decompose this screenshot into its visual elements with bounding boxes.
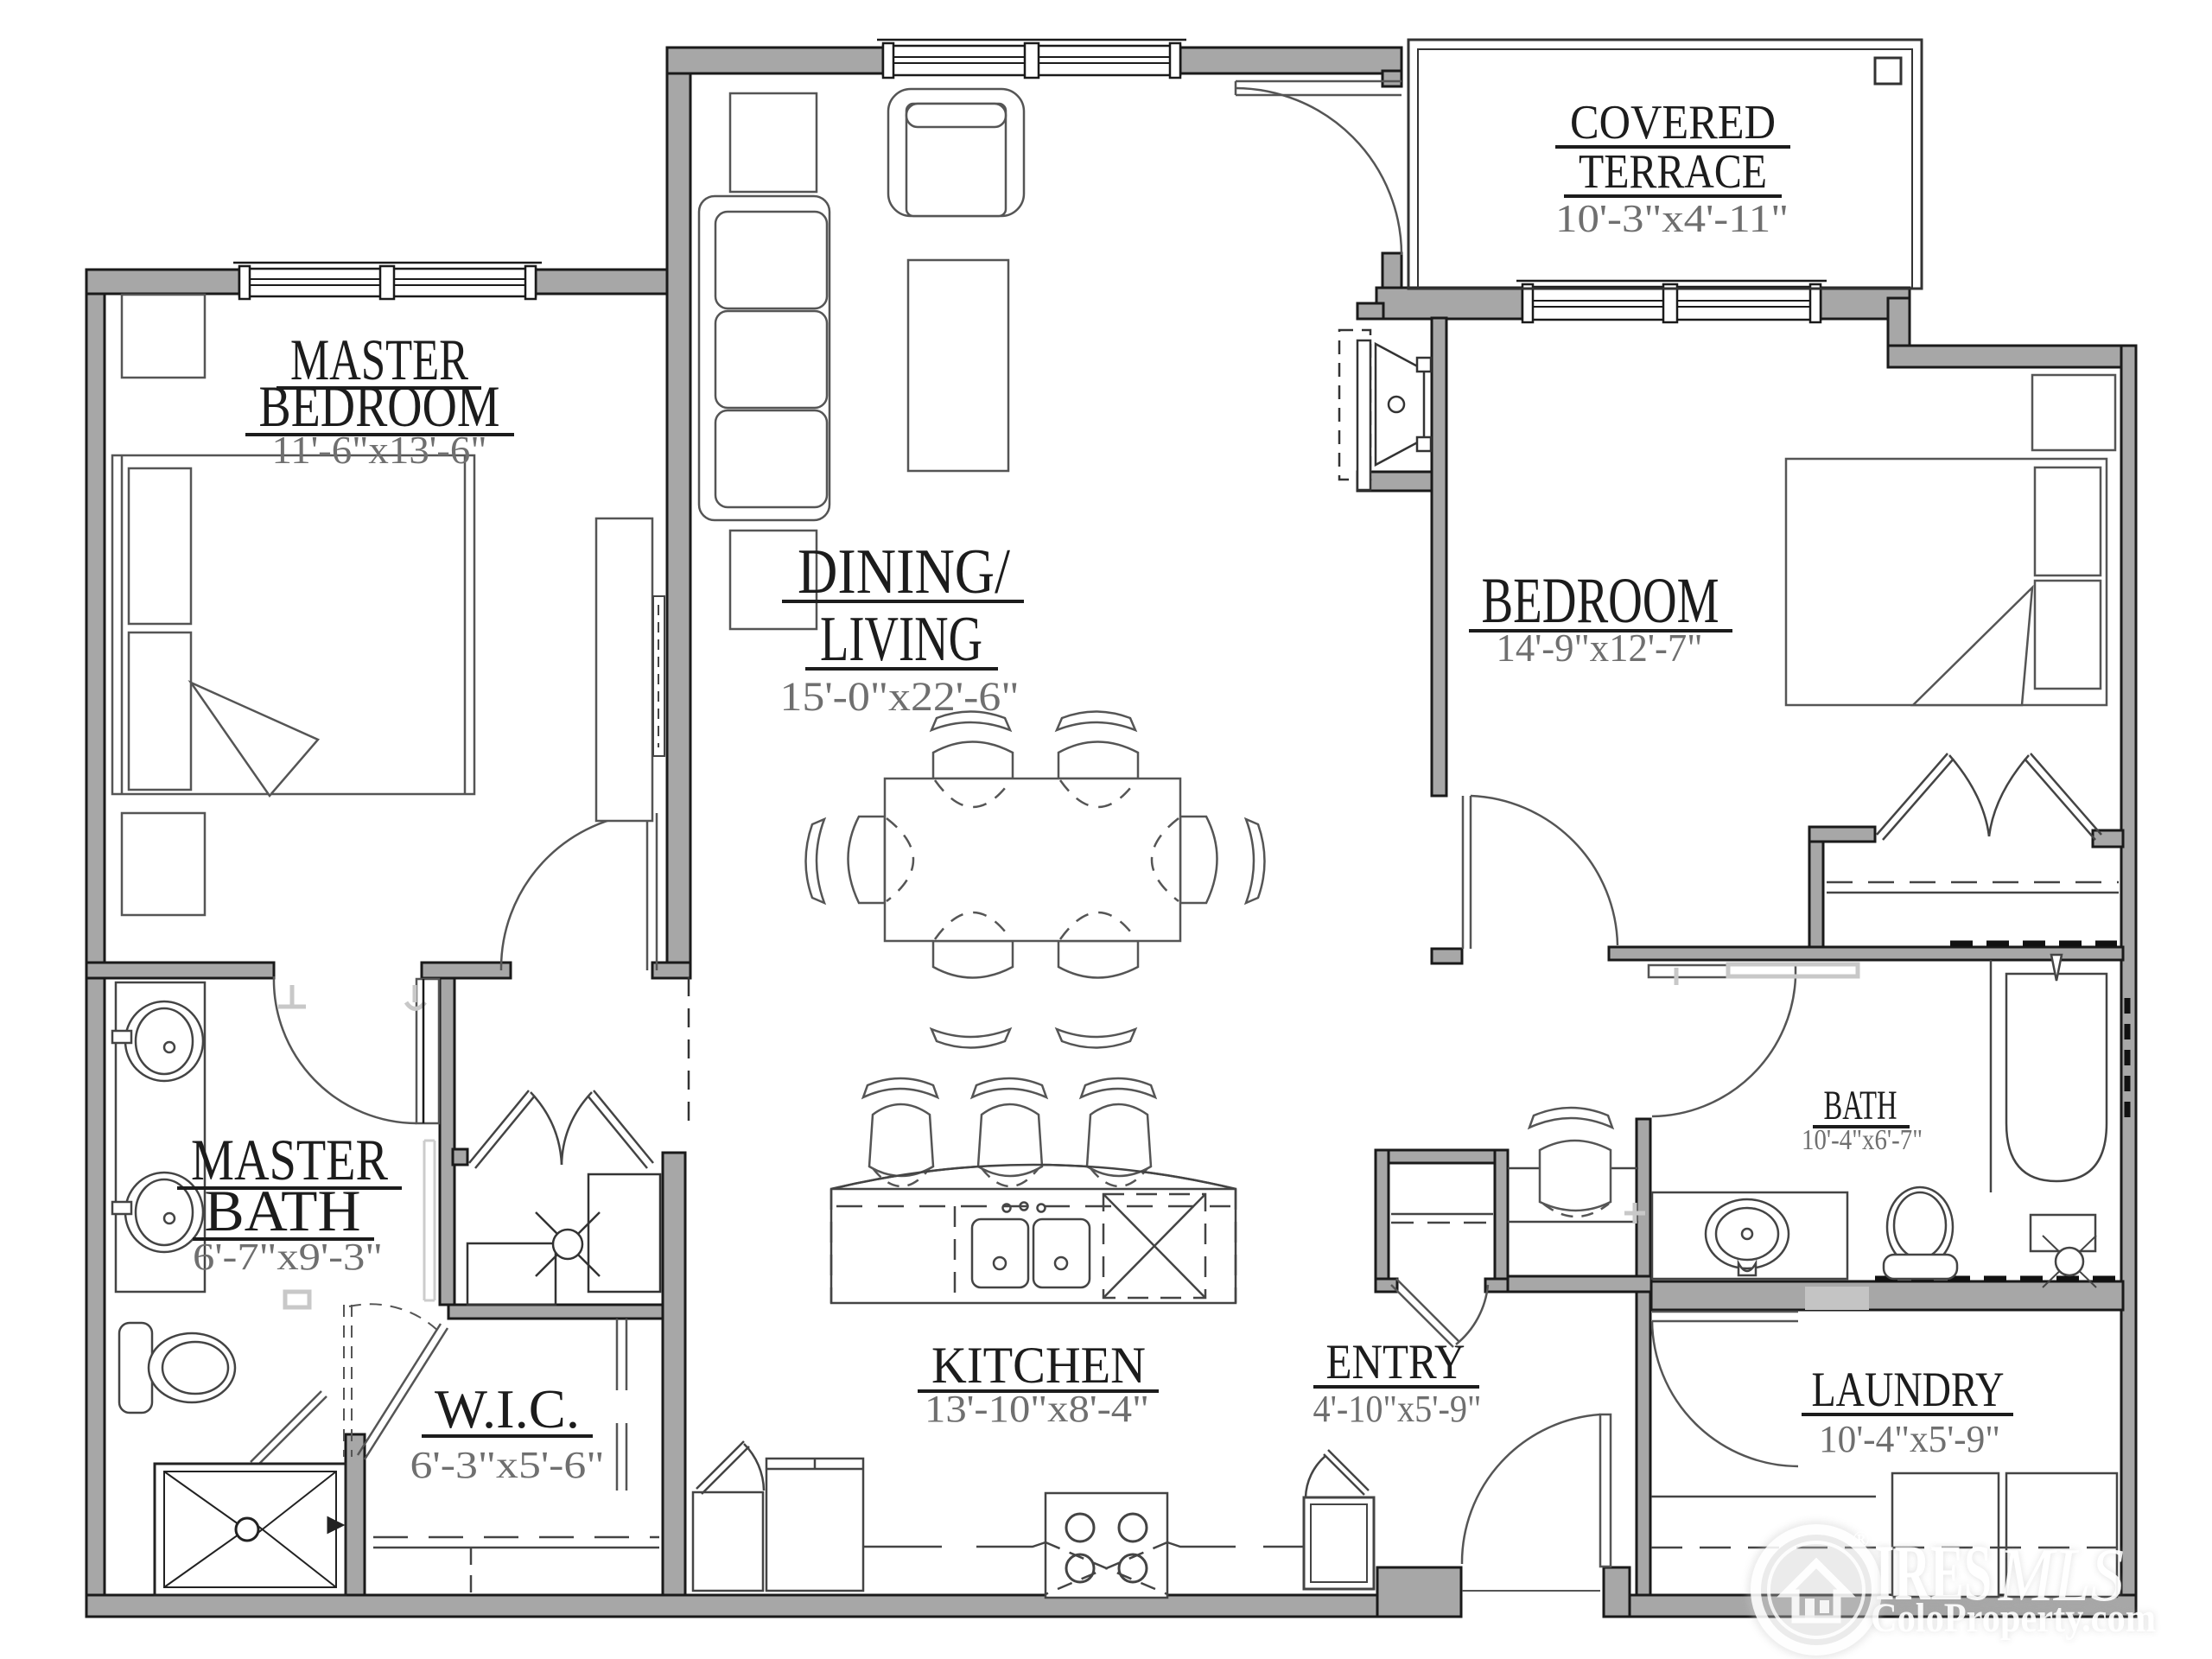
svg-text:© IRES: © IRES xyxy=(2168,1536,2207,1633)
svg-text:10'-4"x5'-9": 10'-4"x5'-9" xyxy=(1819,1418,2000,1460)
svg-text:11'-6"x13'-6": 11'-6"x13'-6" xyxy=(272,428,487,472)
svg-text:10'-3"x4'-11": 10'-3"x4'-11" xyxy=(1555,196,1789,240)
svg-text:6'-3"x5'-6": 6'-3"x5'-6" xyxy=(410,1444,605,1486)
svg-text:4'-10"x5'-9": 4'-10"x5'-9" xyxy=(1313,1388,1482,1430)
svg-text:COVERED: COVERED xyxy=(1570,96,1776,149)
svg-text:BATH: BATH xyxy=(1824,1083,1897,1128)
svg-text:6'-7"x9'-3": 6'-7"x9'-3" xyxy=(193,1236,383,1278)
svg-text:DINING/: DINING/ xyxy=(798,537,1010,607)
svg-text:MLS: MLS xyxy=(1997,1534,2124,1618)
svg-text:13'-10"x8'-4": 13'-10"x8'-4" xyxy=(925,1388,1149,1430)
svg-text:KITCHEN: KITCHEN xyxy=(931,1337,1146,1394)
svg-text:14'-9"x12'-7": 14'-9"x12'-7" xyxy=(1497,626,1703,670)
svg-text:15'-0"x22'-6": 15'-0"x22'-6" xyxy=(780,674,1020,720)
svg-text:LAUNDRY: LAUNDRY xyxy=(1812,1363,2005,1417)
svg-text:10'-4"x6'-7": 10'-4"x6'-7" xyxy=(1802,1124,1923,1156)
svg-text:®: ® xyxy=(1853,1527,1869,1552)
svg-text:W.I.C.: W.I.C. xyxy=(435,1378,580,1440)
svg-text:LIVING: LIVING xyxy=(820,604,982,675)
svg-text:ENTRY: ENTRY xyxy=(1326,1335,1465,1389)
svg-text:TERRACE: TERRACE xyxy=(1579,145,1767,199)
